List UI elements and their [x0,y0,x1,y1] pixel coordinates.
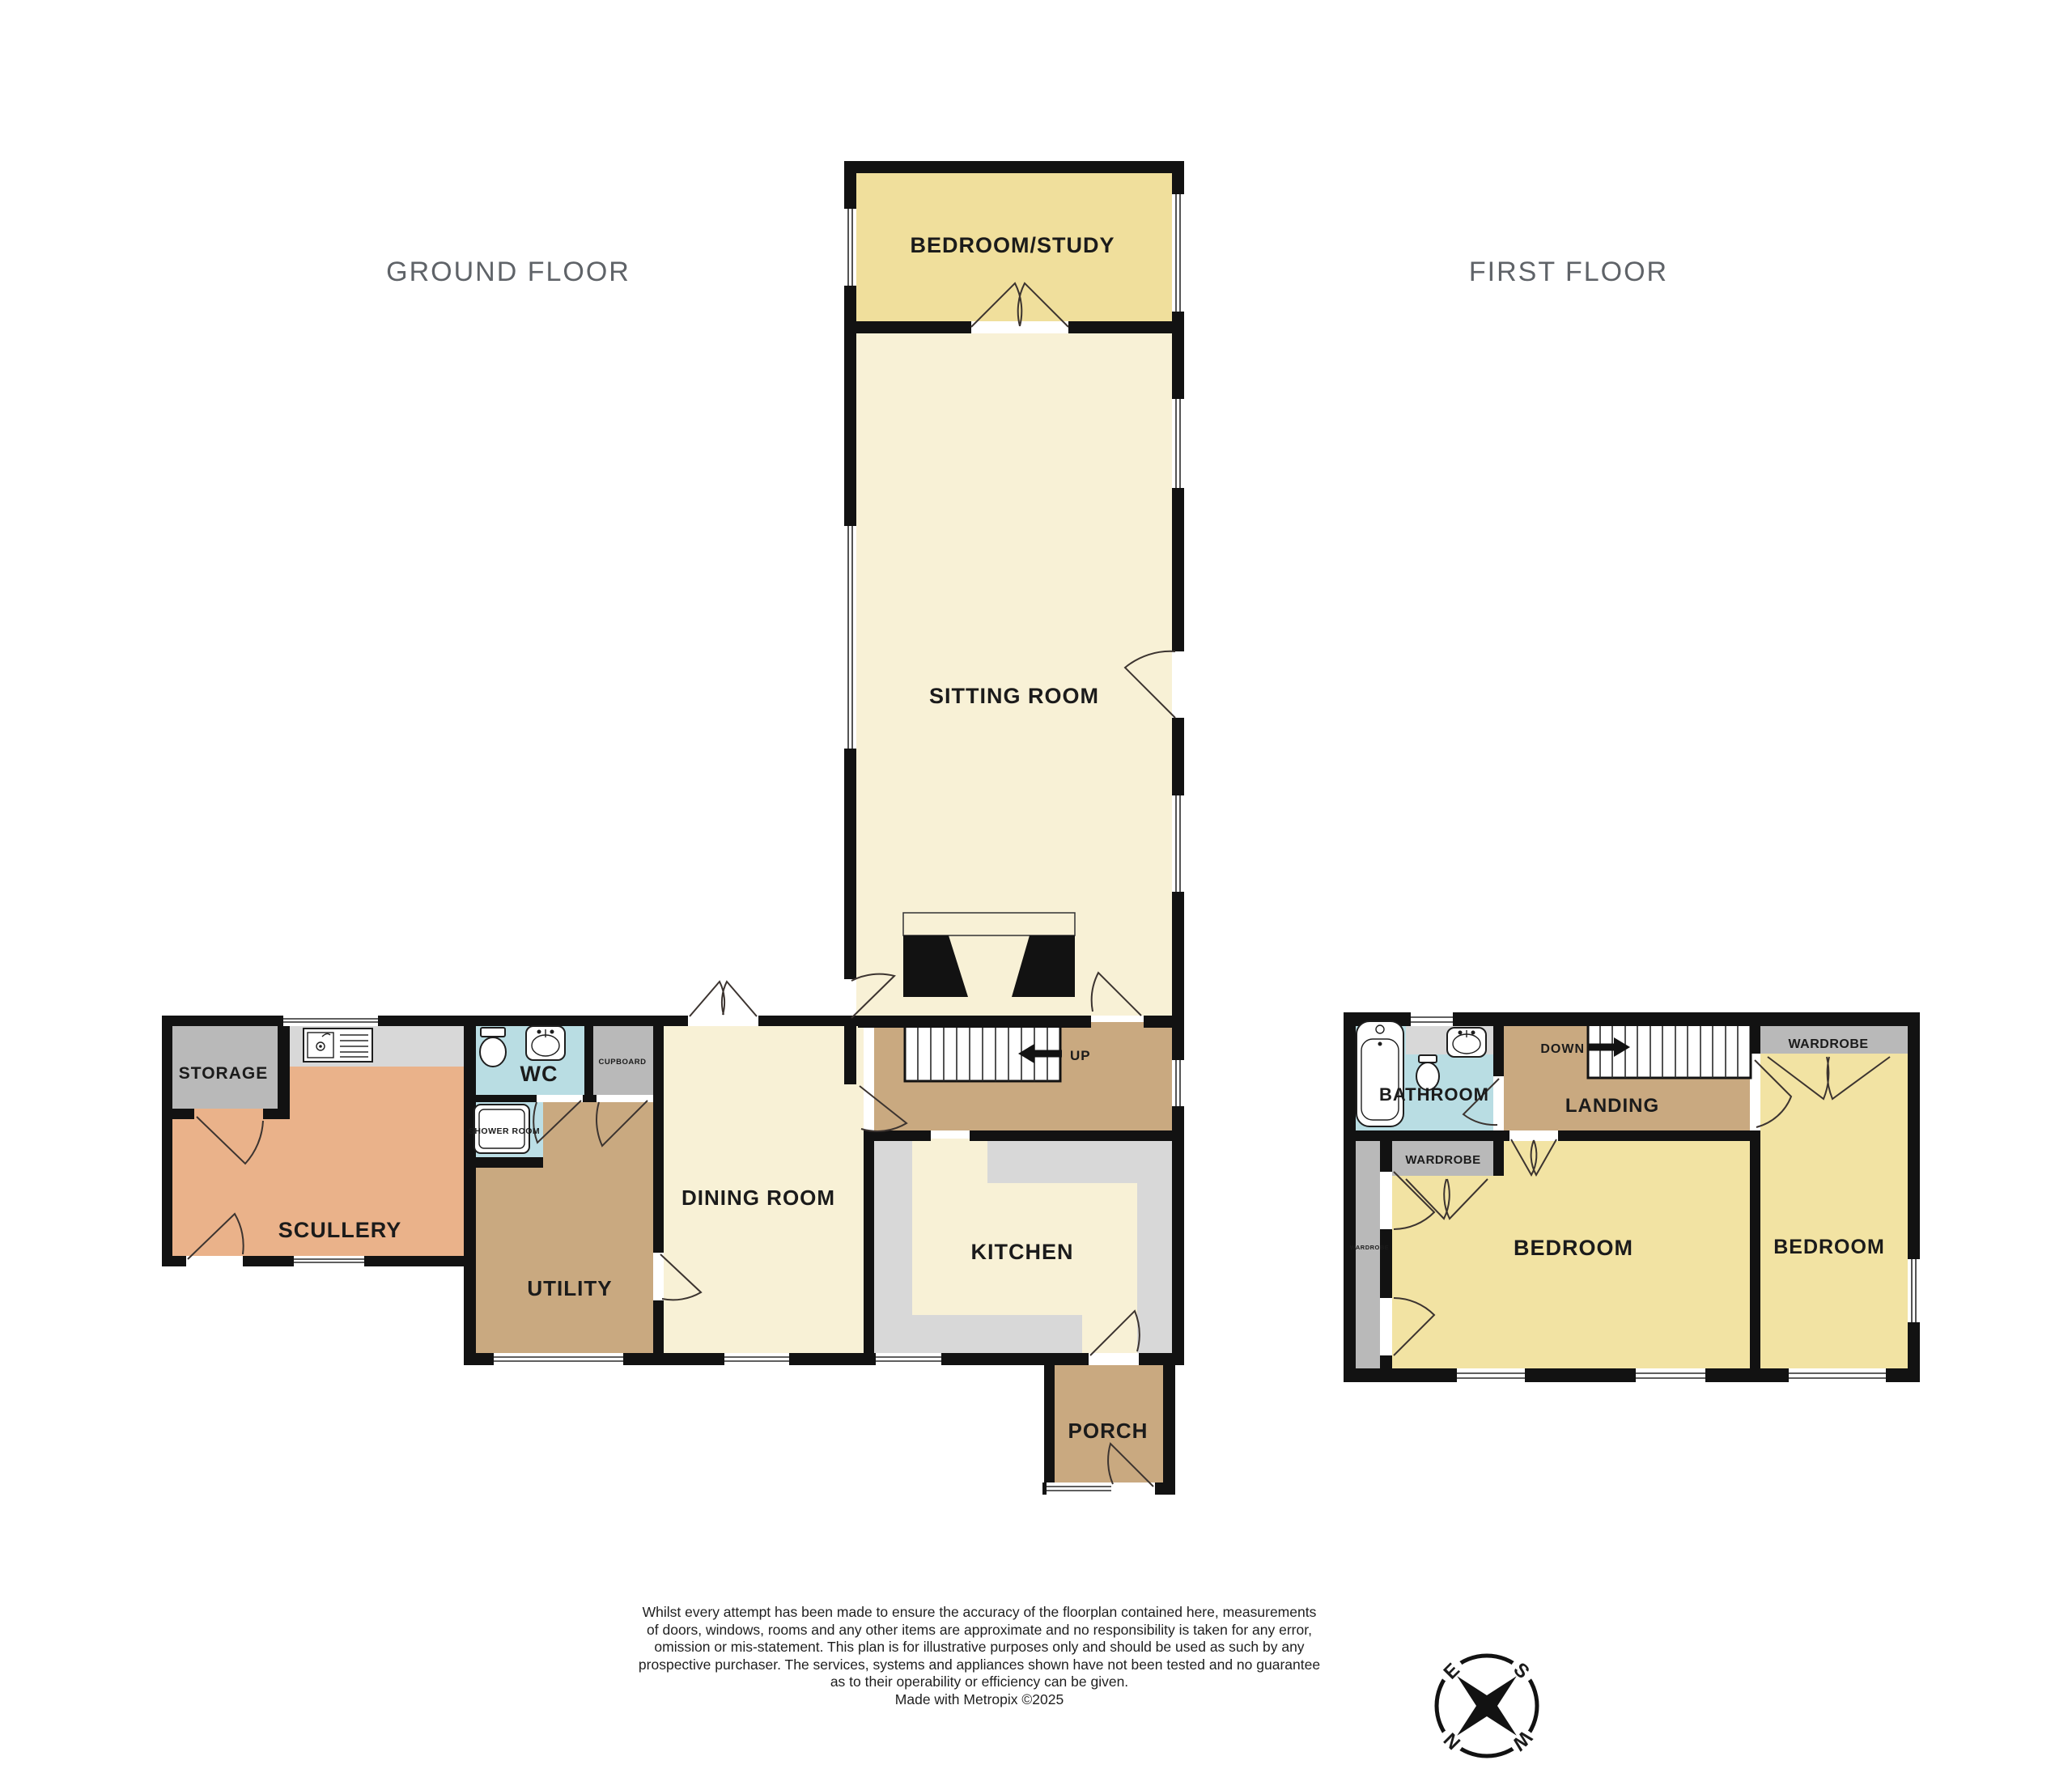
porch-label: PORCH [1068,1419,1149,1443]
wall-segment [162,1016,172,1266]
disclaimer-line: of doors, windows, rooms and any other i… [558,1622,1400,1639]
cupboard-label: CUPBOARD [599,1058,647,1067]
wall-segment [1044,1353,1055,1495]
wc-label: WC [520,1062,558,1086]
wall-segment [1750,1130,1760,1368]
bath-icon [1357,1021,1403,1126]
utility-label: UTILITY [527,1276,612,1300]
door-arc [722,982,757,1016]
wall-segment [364,1256,476,1266]
window [1789,1368,1886,1382]
window [844,526,856,749]
storage-label: STORAGE [179,1064,268,1083]
wall-segment [1042,1482,1047,1495]
wall-segment [1172,892,1184,1060]
window [283,1016,378,1026]
disclaimer-text: Whilst every attempt has been made to en… [558,1604,1400,1708]
wall-segment [844,321,971,333]
wall-segment [1163,1365,1175,1495]
wall-segment [162,1109,194,1119]
wall-segment [583,1095,597,1102]
bathroom-label: BATHROOM [1379,1084,1489,1105]
wall-segment [1886,1368,1920,1382]
wall-segment [464,1266,476,1365]
compass-rose: N E S W [1437,1656,1537,1756]
floorplan-drawing: GROUND FLOOR FIRST FLOOR [0,0,2072,1790]
wall-segment [584,1022,593,1095]
wall-segment [1344,1130,1509,1141]
window [1172,399,1184,488]
wall-segment [1525,1368,1636,1382]
ground-floor-title: GROUND FLOOR [386,257,631,287]
wall-segment [1380,1355,1392,1368]
fireplace-hearth [903,913,1075,935]
wall-segment [844,1018,856,1084]
wc-toilet-icon [480,1028,506,1067]
wall-segment [653,1300,664,1365]
wall-segment [1558,1130,1750,1141]
bedroom-right-label: BEDROOM [1773,1236,1885,1258]
wall-segment [1172,1106,1184,1365]
window [1636,1368,1705,1382]
wall-segment [162,1016,283,1026]
wall-segment [378,1016,653,1026]
window [1172,795,1184,892]
window [844,209,856,286]
floorplan-page: GROUND FLOOR FIRST FLOOR [0,0,2072,1790]
wall-segment [858,1016,1091,1028]
bedroom-study-label: BEDROOM/STUDY [910,233,1115,257]
wall-segment [1344,1012,1356,1382]
landing-label: LANDING [1565,1095,1659,1117]
kitchen-counter [1137,1141,1175,1353]
wall-segment [623,1353,653,1365]
dining-room-label: DINING ROOM [681,1186,835,1210]
wc-sink-icon [526,1026,565,1060]
wall-segment [476,1353,494,1365]
wall-segment [941,1353,1089,1365]
wall-segment [1155,1482,1175,1495]
wall-segment [476,1095,537,1102]
wall-segment [243,1256,294,1266]
wall-segment [1380,1137,1392,1172]
wall-segment [758,1016,858,1026]
disclaimer-line: omission or mis-statement. This plan is … [558,1639,1400,1656]
wall-segment [844,749,856,979]
wall-segment [278,1025,290,1109]
wall-segment [1172,718,1184,795]
wall-segment [1705,1368,1789,1382]
compass-star [1457,1676,1517,1736]
window [1172,1060,1184,1106]
shower-room-label: SHOWER ROOM [469,1126,540,1136]
wall-segment [1750,1012,1760,1054]
disclaimer-line: prospective purchaser. The services, sys… [558,1656,1400,1674]
room-bedroom-right [1760,1054,1908,1368]
bedroom-center-label: BEDROOM [1514,1236,1633,1260]
wall-segment [653,1016,664,1253]
wall-segment [844,161,1184,173]
wall-segment [1453,1012,1920,1026]
wall-segment [864,1130,874,1365]
wall-segment [1144,1016,1172,1028]
scullery-label: SCULLERY [278,1218,402,1242]
window [724,1353,789,1365]
wall-segment [1139,1353,1184,1365]
down-label: DOWN [1540,1042,1585,1056]
room-wardrobe-left [1356,1137,1380,1368]
up-label: UP [1070,1048,1091,1063]
kitchen-label: KITCHEN [971,1240,1074,1264]
window [876,1353,941,1365]
wall-segment [1493,1137,1504,1176]
disclaimer-line: Whilst every attempt has been made to en… [558,1604,1400,1622]
wall-segment [464,1157,543,1168]
wall-segment [653,1353,724,1365]
wall-segment [162,1256,186,1266]
wall-segment [1493,1026,1504,1076]
wall-segment [1068,321,1184,333]
window [1172,194,1184,312]
wardrobe-mid-label: WARDROBE [1405,1153,1480,1167]
wall-segment [1344,1368,1457,1382]
wall-segment [1172,161,1184,194]
window [1457,1368,1525,1382]
wall-segment [789,1353,876,1365]
disclaimer-line: as to their operability or efficiency ca… [558,1673,1400,1691]
wall-segment [970,1130,1175,1141]
door-arc [690,982,724,1016]
wardrobe-left-label: WARDROBE [1350,1244,1390,1251]
kitchen-counter [874,1315,1082,1353]
window [294,1256,364,1266]
scullery-sink-icon [304,1029,372,1062]
ground-floor-rooms [172,173,1175,1482]
wall-segment [1380,1229,1392,1298]
bathroom-sink-icon [1447,1028,1486,1057]
sitting-room-label: SITTING ROOM [929,684,1099,708]
wall-segment [263,1109,290,1119]
first-floor-title: FIRST FLOOR [1469,257,1668,287]
wall-segment [874,1130,931,1141]
window [1047,1482,1111,1495]
window [494,1353,623,1365]
metropix-credit: Made with Metropix ©2025 [558,1691,1400,1709]
window [1411,1012,1453,1026]
wall-segment [1172,488,1184,651]
wardrobe-top-label: WARDROBE [1788,1037,1868,1051]
wall-segment [844,161,856,209]
window [1908,1259,1920,1322]
wall-segment [1908,1012,1920,1259]
